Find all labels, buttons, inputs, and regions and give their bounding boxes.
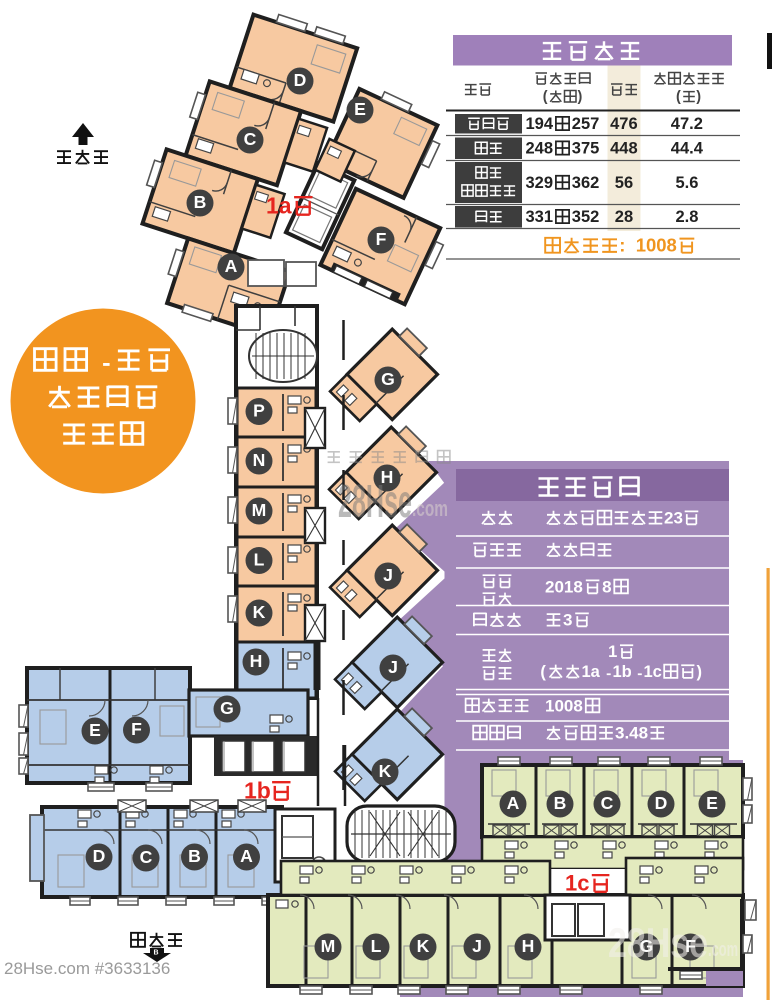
svg-text:1b: 1b (244, 777, 271, 803)
svg-text:C: C (601, 793, 614, 813)
svg-text:375: 375 (572, 140, 600, 158)
svg-text:E: E (354, 99, 366, 119)
svg-text:248: 248 (526, 140, 554, 158)
svg-text:362: 362 (572, 174, 600, 192)
svg-text:K: K (417, 936, 430, 956)
svg-text:J: J (383, 565, 393, 585)
svg-text:28Hse.com #3633136: 28Hse.com #3633136 (4, 959, 170, 978)
svg-text:): ) (697, 663, 703, 681)
svg-text:A: A (240, 846, 253, 866)
svg-text:J: J (472, 936, 482, 956)
svg-text:A: A (507, 793, 520, 813)
svg-text:.com: .com (708, 939, 738, 961)
svg-text:1c: 1c (565, 871, 589, 896)
svg-text:J: J (388, 657, 398, 677)
svg-text:1a: 1a (266, 192, 292, 218)
svg-text:331: 331 (526, 208, 554, 226)
svg-text:(: ( (540, 663, 546, 681)
svg-text:K: K (253, 602, 266, 622)
svg-text:448: 448 (610, 140, 638, 158)
svg-text:N: N (253, 450, 266, 470)
svg-text:28: 28 (615, 208, 633, 226)
svg-text:1: 1 (608, 643, 617, 661)
svg-text:F: F (376, 229, 387, 249)
svg-text:L: L (371, 936, 382, 956)
svg-text:E: E (706, 793, 718, 813)
svg-text:M: M (321, 936, 336, 956)
svg-text:5.6: 5.6 (676, 174, 699, 192)
svg-text:L: L (254, 549, 265, 569)
svg-text:H: H (522, 936, 535, 956)
svg-text:F: F (131, 719, 142, 739)
svg-text:1008: 1008 (545, 696, 583, 715)
svg-text:329: 329 (526, 174, 554, 192)
svg-text:B: B (154, 950, 159, 957)
svg-text:(: ( (676, 89, 681, 105)
svg-text:28Hse: 28Hse (608, 919, 708, 966)
svg-text:1c: 1c (644, 663, 662, 681)
svg-text:3.48: 3.48 (615, 723, 648, 742)
svg-text:3: 3 (563, 610, 572, 629)
svg-text:2.8: 2.8 (676, 208, 699, 226)
svg-text:A: A (225, 256, 238, 276)
svg-text:47.2: 47.2 (671, 115, 703, 133)
svg-text:): ) (696, 89, 701, 105)
svg-text:8: 8 (602, 577, 611, 596)
svg-text:B: B (554, 793, 567, 813)
svg-text:1008: 1008 (636, 235, 677, 256)
svg-text:56: 56 (615, 174, 633, 192)
svg-text:23: 23 (664, 508, 683, 527)
svg-text:G: G (220, 698, 234, 718)
svg-text:P: P (253, 400, 265, 420)
svg-text:D: D (655, 793, 668, 813)
svg-text:D: D (93, 846, 106, 866)
svg-text:257: 257 (572, 115, 600, 133)
svg-text:M: M (252, 500, 267, 520)
svg-text:C: C (244, 129, 257, 149)
svg-text:2018: 2018 (545, 577, 583, 596)
svg-text:28Hse: 28Hse (338, 475, 412, 527)
svg-text:1a: 1a (582, 663, 601, 681)
svg-text:B: B (188, 846, 201, 866)
svg-text:E: E (89, 720, 101, 740)
svg-text:B: B (194, 192, 207, 212)
svg-text:(: ( (543, 89, 548, 105)
svg-text:): ) (578, 89, 583, 105)
svg-text:476: 476 (610, 115, 638, 133)
svg-text:K: K (379, 761, 392, 781)
svg-text:G: G (381, 369, 395, 389)
svg-text:44.4: 44.4 (671, 140, 704, 158)
svg-text::: : (619, 235, 625, 256)
svg-text:.com: .com (412, 496, 448, 521)
svg-text:D: D (294, 70, 307, 90)
svg-text:H: H (250, 651, 263, 671)
svg-text:1b: 1b (613, 663, 632, 681)
svg-text:352: 352 (572, 208, 600, 226)
svg-text:C: C (140, 847, 153, 867)
svg-text:194: 194 (526, 115, 554, 133)
